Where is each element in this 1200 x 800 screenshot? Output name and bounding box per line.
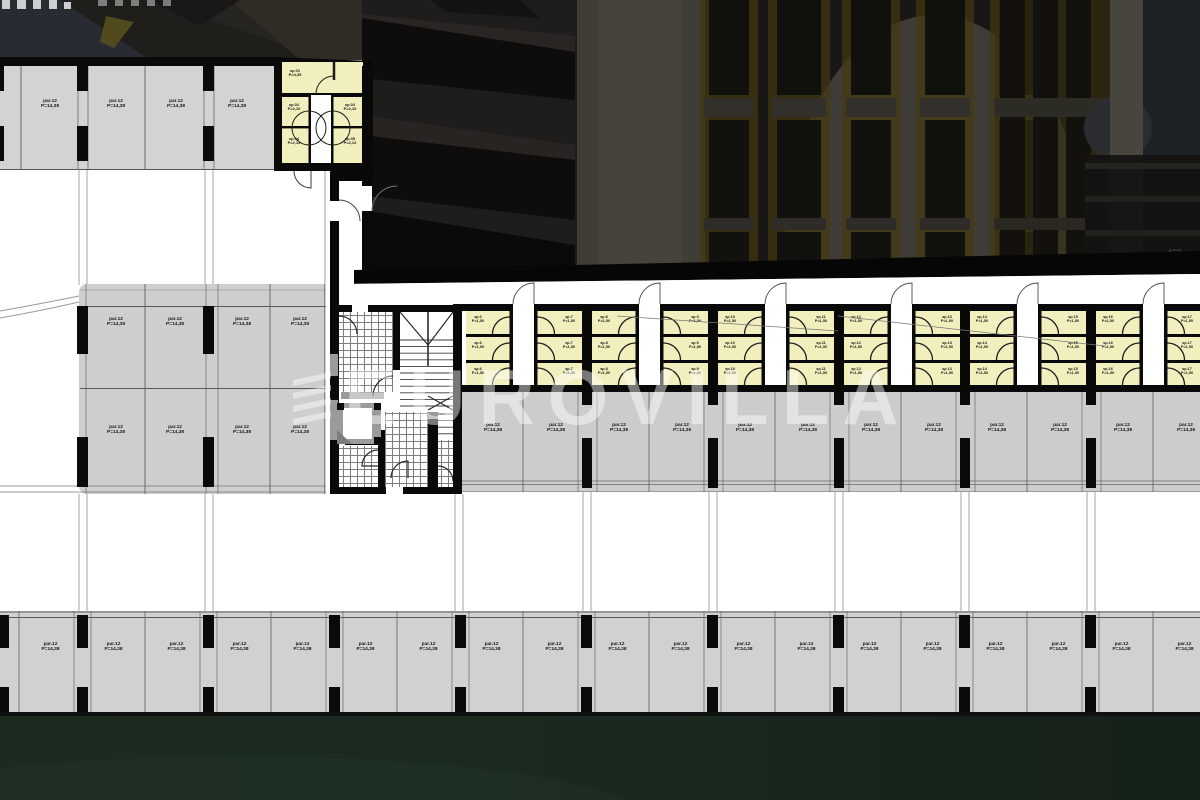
svg-text:par.12P=14,38: par.12P=14,38 <box>356 641 374 652</box>
svg-text:sp.12P=1,50: sp.12P=1,50 <box>850 315 862 323</box>
svg-text:par.12P=14,38: par.12P=14,38 <box>734 641 752 652</box>
svg-text:sp.17P=1,50: sp.17P=1,50 <box>1181 367 1193 375</box>
svg-text:par.12P=14,38: par.12P=14,38 <box>166 424 184 435</box>
svg-text:par.12P=14,38: par.12P=14,38 <box>291 316 309 327</box>
svg-text:sp.12P=1,50: sp.12P=1,50 <box>850 341 862 349</box>
svg-text:par.12P=14,38: par.12P=14,38 <box>166 316 184 327</box>
svg-text:sp.16P=1,50: sp.16P=1,50 <box>1102 315 1114 323</box>
svg-text:par.12P=14,38: par.12P=14,38 <box>107 98 125 109</box>
svg-text:sp.10P=1,50: sp.10P=1,50 <box>724 341 736 349</box>
svg-text:par.12P=14,38: par.12P=14,38 <box>797 641 815 652</box>
svg-text:par.12P=14,38: par.12P=14,38 <box>545 641 563 652</box>
svg-text:sp.13P=1,50: sp.13P=1,50 <box>941 367 953 375</box>
svg-text:sp.13P=1,50: sp.13P=1,50 <box>941 341 953 349</box>
svg-text:sp.16P=1,50: sp.16P=1,50 <box>1102 341 1114 349</box>
svg-text:par.12P=14,38: par.12P=14,38 <box>291 424 309 435</box>
svg-text:par.12P=14,38: par.12P=14,38 <box>671 641 689 652</box>
svg-text:par.12P=14,38: par.12P=14,38 <box>228 98 246 109</box>
svg-text:par.12P=14,38: par.12P=14,38 <box>293 641 311 652</box>
svg-text:par.12P=14,38: par.12P=14,38 <box>860 641 878 652</box>
svg-text:par.12P=14,38: par.12P=14,38 <box>41 98 59 109</box>
svg-text:par.12P=14,38: par.12P=14,38 <box>230 641 248 652</box>
svg-text:par.12P=14,38: par.12P=14,38 <box>1112 641 1130 652</box>
svg-text:sp.14P=1,50: sp.14P=1,50 <box>976 367 988 375</box>
svg-text:par.12P=14,38: par.12P=14,38 <box>988 422 1006 433</box>
svg-text:sp.16P=1,50: sp.16P=1,50 <box>1102 367 1114 375</box>
svg-text:par.12P=14,38: par.12P=14,38 <box>482 641 500 652</box>
svg-text:sp.15P=1,50: sp.15P=1,50 <box>1067 315 1079 323</box>
svg-text:par.12P=14,38: par.12P=14,38 <box>419 641 437 652</box>
svg-text:sp.13P=1,50: sp.13P=1,50 <box>941 315 953 323</box>
svg-text:par.12P=14,38: par.12P=14,38 <box>104 641 122 652</box>
svg-text:par.12P=14,38: par.12P=14,38 <box>167 641 185 652</box>
svg-text:par.12P=14,38: par.12P=14,38 <box>233 424 251 435</box>
svg-text:sp.15P=1,50: sp.15P=1,50 <box>1067 367 1079 375</box>
svg-text:EUROVILLA: EUROVILLA <box>344 353 912 441</box>
svg-text:sp.14P=1,50: sp.14P=1,50 <box>976 341 988 349</box>
svg-text:par.12P=14,38: par.12P=14,38 <box>233 316 251 327</box>
svg-text:par.12P=14,38: par.12P=14,38 <box>1114 422 1132 433</box>
svg-text:par.12P=14,38: par.12P=14,38 <box>1051 422 1069 433</box>
svg-text:sp.17P=1,50: sp.17P=1,50 <box>1181 315 1193 323</box>
svg-text:par.12P=14,38: par.12P=14,38 <box>41 641 59 652</box>
svg-text:par.12P=14,38: par.12P=14,38 <box>925 422 943 433</box>
svg-text:sp.11P=1,50: sp.11P=1,50 <box>815 341 827 349</box>
svg-text:par.12P=14,38: par.12P=14,38 <box>1049 641 1067 652</box>
svg-text:par.12P=14,38: par.12P=14,38 <box>1177 422 1195 433</box>
svg-text:sp.14P=1,50: sp.14P=1,50 <box>976 315 988 323</box>
svg-text:par.12P=14,38: par.12P=14,38 <box>986 641 1004 652</box>
svg-text:sp.17P=1,50: sp.17P=1,50 <box>1181 341 1193 349</box>
svg-text:par.12P=14,38: par.12P=14,38 <box>107 424 125 435</box>
svg-text:par.12P=14,38: par.12P=14,38 <box>1175 641 1193 652</box>
svg-text:par.12P=14,38: par.12P=14,38 <box>167 98 185 109</box>
svg-text:par.12P=14,38: par.12P=14,38 <box>923 641 941 652</box>
svg-text:sp.10P=1,50: sp.10P=1,50 <box>724 315 736 323</box>
svg-text:par.12P=14,38: par.12P=14,38 <box>608 641 626 652</box>
svg-text:sp.11P=1,50: sp.11P=1,50 <box>815 315 827 323</box>
svg-text:par.12P=14,38: par.12P=14,38 <box>107 316 125 327</box>
